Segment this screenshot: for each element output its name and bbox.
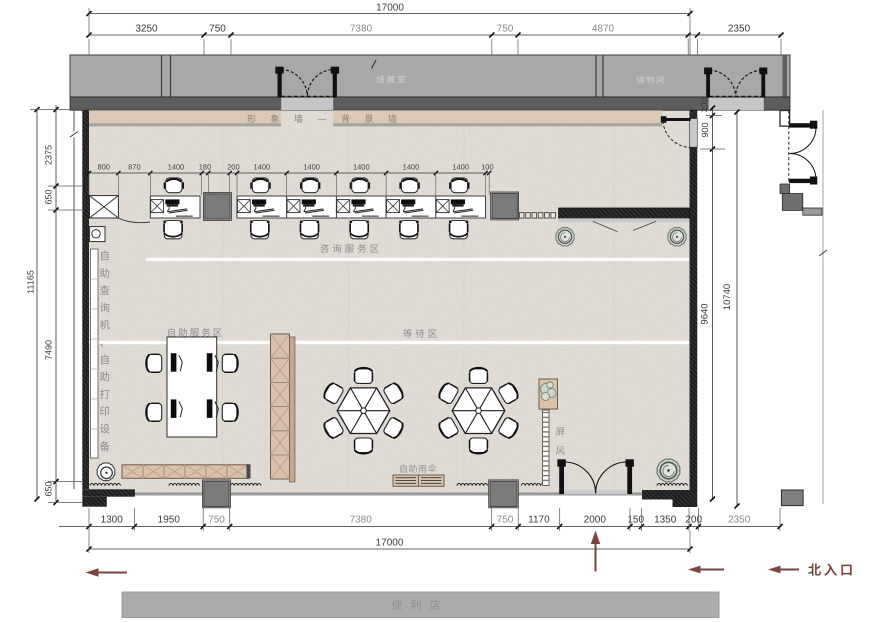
svg-text:200: 200 — [699, 98, 709, 112]
svg-text:870: 870 — [128, 163, 141, 172]
svg-text:7380: 7380 — [350, 24, 373, 35]
svg-text:1300: 1300 — [101, 515, 124, 526]
svg-text:1170: 1170 — [528, 515, 550, 526]
svg-text:11165: 11165 — [26, 270, 36, 294]
svg-text:10740: 10740 — [722, 284, 733, 310]
svg-text:180: 180 — [199, 163, 212, 172]
svg-text:自: 自 — [100, 251, 111, 263]
svg-text:查: 查 — [100, 285, 111, 297]
svg-text:助: 助 — [100, 268, 111, 280]
svg-text:200: 200 — [685, 515, 702, 526]
svg-text:750: 750 — [497, 24, 514, 35]
svg-text:1400: 1400 — [403, 163, 420, 172]
svg-text:备: 备 — [100, 441, 111, 453]
svg-text:北入口: 北入口 — [808, 563, 856, 578]
svg-text:1400: 1400 — [168, 163, 185, 172]
svg-text:咨询服务区: 咨询服务区 — [320, 244, 383, 255]
svg-text:便利店: 便利店 — [392, 599, 449, 612]
svg-text:屏: 屏 — [556, 427, 566, 438]
svg-text:1400: 1400 — [452, 163, 469, 172]
svg-text:100: 100 — [481, 163, 494, 172]
svg-text:750: 750 — [208, 515, 225, 526]
svg-text:2350: 2350 — [728, 24, 751, 35]
svg-text:2375: 2375 — [44, 145, 54, 165]
svg-text:1400: 1400 — [254, 163, 271, 172]
svg-text:设: 设 — [100, 424, 111, 436]
svg-text:、: 、 — [100, 337, 111, 349]
svg-text:17000: 17000 — [376, 538, 404, 549]
svg-text:650: 650 — [44, 189, 54, 204]
svg-text:1950: 1950 — [158, 515, 181, 526]
svg-text:储藏室: 储藏室 — [376, 75, 408, 85]
svg-text:7490: 7490 — [44, 340, 54, 360]
svg-text:等待区: 等待区 — [403, 328, 441, 340]
svg-text:900: 900 — [700, 122, 710, 137]
svg-text:印: 印 — [100, 406, 111, 418]
svg-text:17000: 17000 — [376, 3, 404, 14]
svg-text:7380: 7380 — [350, 515, 373, 526]
svg-text:2000: 2000 — [584, 515, 607, 526]
svg-text:200: 200 — [227, 163, 240, 172]
svg-text:形象墙—背景墙: 形象墙—背景墙 — [247, 114, 412, 124]
svg-text:询: 询 — [100, 302, 111, 314]
svg-text:4870: 4870 — [592, 24, 615, 35]
svg-text:650: 650 — [44, 481, 54, 496]
svg-text:机: 机 — [100, 320, 111, 332]
svg-text:自: 自 — [100, 354, 111, 366]
svg-text:800: 800 — [97, 163, 110, 172]
svg-text:1350: 1350 — [654, 515, 677, 526]
svg-text:打: 打 — [100, 389, 111, 401]
svg-text:2350: 2350 — [728, 515, 751, 526]
svg-text:750: 750 — [497, 515, 514, 526]
svg-text:750: 750 — [209, 24, 226, 35]
svg-text:1400: 1400 — [303, 163, 320, 172]
svg-text:储物间: 储物间 — [636, 75, 666, 85]
svg-text:助: 助 — [100, 372, 111, 384]
svg-text:1400: 1400 — [353, 163, 370, 172]
svg-text:3250: 3250 — [135, 24, 158, 35]
svg-text:9640: 9640 — [700, 303, 711, 324]
svg-text:自助雨伞: 自助雨伞 — [399, 464, 437, 474]
svg-text:风: 风 — [556, 446, 566, 457]
